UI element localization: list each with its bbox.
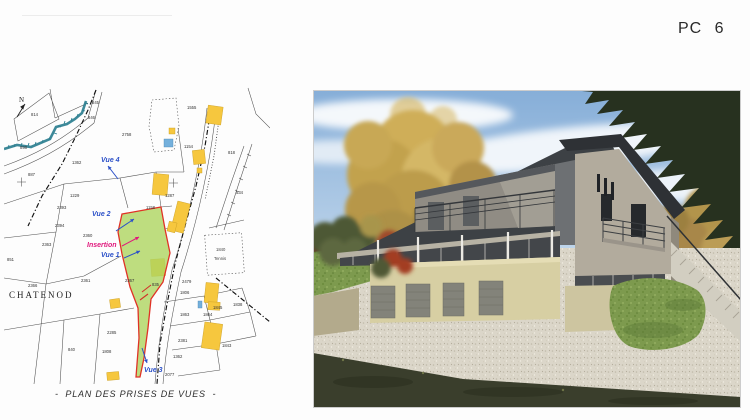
parcel-number: 1555 [187,105,197,110]
parcel-number: 1154 [184,144,194,149]
document-page: PC 6 [0,0,750,420]
gable-door [631,204,646,237]
parcel-number: 2363 [42,242,52,247]
parcel-number: 814 [31,112,39,117]
parcel-number: 1362 [72,160,82,165]
parcel-number: 534 [236,190,244,195]
view-label: Vue 1 [101,252,120,259]
scan-artifact [22,15,172,16]
parcel-number: 1843 [222,343,232,348]
parcel-number: 2758 [122,132,132,137]
parcel-number: 1287 [165,193,175,198]
parcel-number: 846 [88,115,96,120]
view-label: Vue 4 [101,157,120,164]
parcel-number: 2077 [165,372,175,377]
parcel-number: 2394 [55,223,65,228]
tennis-parcel-number: 1840 [216,247,226,252]
parcel-number: 1158 [146,205,156,210]
site-map-svg: N 1840 Tennis CHATENOD 81484584689888727… [4,86,270,386]
parcel-number: 887 [28,172,36,177]
page-title: PC 6 [678,20,725,38]
parcel-number: 2285 [107,330,117,335]
parcel-number: 840 [68,347,76,352]
parcel-number: 2366 [28,283,38,288]
north-label: N [19,96,24,104]
parcel-number: 1845 [213,305,223,310]
retaining-wall [313,288,359,336]
map-caption: - PLAN DES PRISES DE VUES - [55,389,216,399]
parcel-number: 851 [7,257,15,262]
parcel-number: 845 [92,100,100,105]
rendering-svg [313,90,741,408]
parcel-number: 818 [228,150,236,155]
parcel-number: 1229 [70,193,80,198]
stream [4,101,88,149]
parcel-number: 1362 [173,354,183,359]
parcel-number: 2393 [57,205,67,210]
gable-window [601,194,612,221]
parcel-number: 2367 [125,278,135,283]
parcel-number: 2360 [83,233,93,238]
parcel-number: 2361 [81,278,91,283]
view-label: Vue 2 [92,211,111,218]
place-name: CHATENOD [9,290,74,300]
view-label: Vue 3 [144,367,163,374]
site-map: N 1840 Tennis CHATENOD 81484584689888727… [4,86,270,386]
parcel-number: 898 [20,145,28,150]
tennis-label: Tennis [214,256,226,261]
project-rendering-photo [313,90,741,408]
parcel-number: 1808 [102,349,112,354]
parcel-number: 2479 [182,279,192,284]
parcel-number: 1864 [203,312,213,317]
parcel-number: 1863 [180,312,190,317]
parcel-number: 1838 [233,302,243,307]
parcel-number: 1806 [180,290,190,295]
project-site-parcel [118,207,170,377]
view-label: Insertion [87,242,117,249]
parcel-number: 2381 [178,338,188,343]
grass-mound [610,278,706,350]
parcel-number: 835 [152,282,160,287]
